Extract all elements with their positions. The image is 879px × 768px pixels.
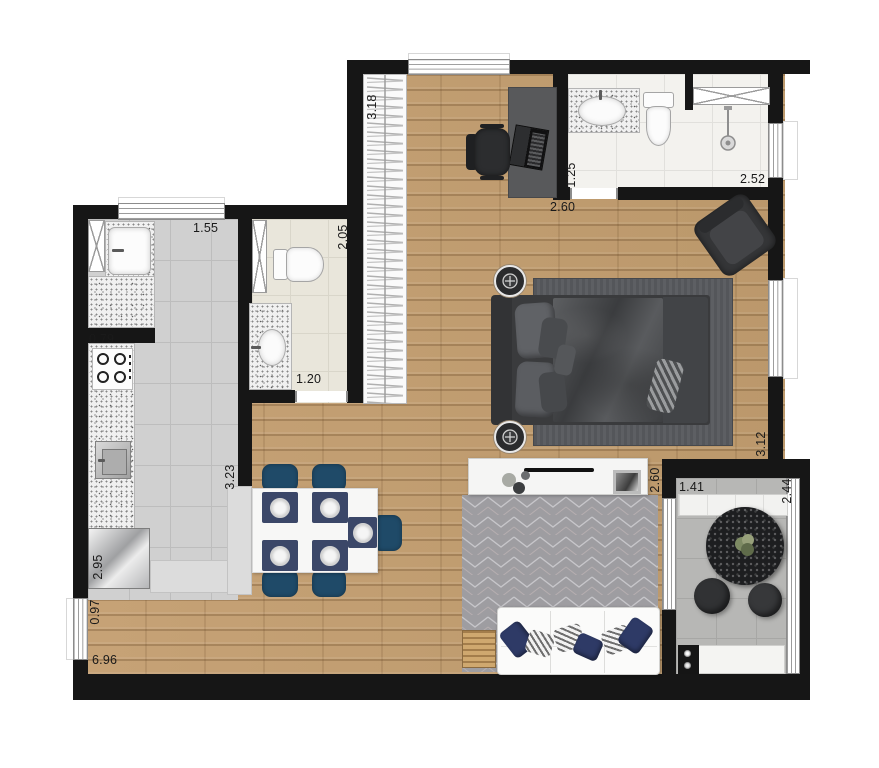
balcony-glass (786, 478, 800, 674)
wall-balcony-left-top (662, 478, 676, 498)
office-chair (466, 124, 512, 180)
window-sill (783, 278, 798, 379)
dim-kitchen-stove: 0.79 (89, 332, 114, 346)
tv-screen (524, 468, 594, 472)
dim-bath-social-door: 1.20 (296, 372, 321, 386)
knob-icon (129, 355, 131, 381)
sofa (497, 607, 660, 675)
sink-basin (102, 449, 127, 475)
plate (320, 546, 340, 566)
bath-social-shower-glass (252, 220, 267, 293)
balcony-pouf (748, 583, 782, 617)
dim-bath-suite-length: 2.52 (740, 172, 765, 186)
laptop-keyboard (527, 132, 546, 167)
dim-balcony-door: 2.60 (648, 467, 662, 492)
laptop (509, 124, 550, 170)
bath-suite-shelf (693, 87, 770, 105)
outside-left (0, 0, 73, 768)
chair-arm (480, 124, 504, 128)
kitchen-peninsula (227, 486, 252, 595)
bed-headboard (491, 295, 512, 425)
dim-laundry-width: 1.55 (193, 221, 218, 235)
wall-bedroom-balcony (662, 459, 810, 478)
lamp-icon (496, 423, 524, 451)
placemat (312, 540, 348, 571)
outside-bottom (0, 700, 879, 768)
dim-hall-width: 0.97 (88, 599, 102, 624)
dining-chair (262, 569, 298, 597)
grill-appliance (678, 645, 699, 674)
dim-living-length: 6.96 (92, 653, 117, 667)
entry-hall-window (408, 59, 510, 75)
nightstand (494, 265, 526, 297)
faucet-icon (251, 346, 261, 349)
bath-suite-window (768, 123, 783, 178)
knob-icon (684, 662, 691, 669)
wall-balcony-right-frame (800, 459, 810, 674)
faucet-icon (112, 249, 124, 252)
stove-cooktop (92, 348, 133, 390)
placemat (348, 517, 377, 548)
bed-pillow (538, 371, 568, 413)
balcony-table (706, 507, 784, 585)
plate (353, 523, 373, 543)
nightstand (494, 421, 526, 453)
floor-plan: 1.55 2.05 1.20 0.79 2.95 0.97 6.96 3.23 … (0, 0, 879, 768)
window-sill (783, 121, 798, 180)
wall-balcony-left-bottom (662, 610, 676, 674)
dim-kitchen-counter: 2.95 (91, 554, 105, 579)
door-bath-social (295, 391, 348, 402)
faucet-icon (98, 459, 105, 462)
outside-right (810, 0, 879, 768)
dim-balcony-length: 2.44 (780, 478, 794, 503)
dim-bath-social-length: 2.05 (336, 224, 350, 249)
decor-vase (513, 482, 525, 494)
dim-bedroom-window: 3.12 (754, 431, 768, 456)
side-table (462, 630, 496, 668)
laundry-window (118, 203, 225, 220)
wall-bath-suite-bottom-b (618, 187, 783, 200)
plate (270, 498, 290, 518)
lamp-icon (496, 267, 524, 295)
bath-social-sink (258, 329, 286, 366)
wall-bath-social-bottom (252, 390, 295, 403)
dim-closet-length: 3.18 (365, 94, 379, 119)
sofa-pillow (524, 629, 556, 659)
dim-bath-suite-width: 1.25 (564, 162, 578, 187)
balcony-sliding-door (662, 498, 676, 610)
wall-bottom (73, 674, 810, 700)
decor-vase (521, 471, 530, 480)
chair-arm (480, 176, 504, 180)
placemat (312, 492, 348, 523)
laundry-counter-low (88, 276, 155, 328)
plate (270, 546, 290, 566)
dim-suite-desk-wall: 2.60 (550, 200, 575, 214)
placemat (262, 492, 298, 523)
burner-icon (114, 353, 126, 365)
burner-icon (114, 371, 126, 383)
closet (363, 74, 407, 404)
picture-frame (613, 470, 641, 494)
tv-console (468, 458, 648, 495)
knob-icon (684, 650, 691, 657)
balcony-pouf (694, 578, 730, 614)
chair-seat (474, 128, 510, 176)
dining-chair (312, 569, 346, 597)
burner-icon (97, 353, 109, 365)
toilet-bowl (646, 106, 671, 146)
wall-bath-suite-partition (685, 74, 693, 110)
bath-suite-sink (578, 96, 626, 126)
dim-kitchen-wall: 3.23 (223, 464, 237, 489)
door-bath-suite (570, 188, 618, 199)
faucet-icon (599, 90, 602, 100)
plant-leaf (741, 543, 754, 556)
kitchen-window (73, 598, 88, 660)
burner-icon (97, 371, 109, 383)
laundry-glass-box (88, 220, 105, 272)
placemat (262, 540, 298, 571)
shower-head-icon (716, 106, 740, 154)
hanger-icon (364, 75, 406, 403)
kitchen-sink (95, 441, 131, 479)
toilet-bowl (286, 247, 324, 282)
plate (320, 498, 340, 518)
bedroom-window (768, 280, 783, 377)
dim-balcony-width: 1.41 (679, 480, 704, 494)
plant-icon (733, 533, 757, 557)
